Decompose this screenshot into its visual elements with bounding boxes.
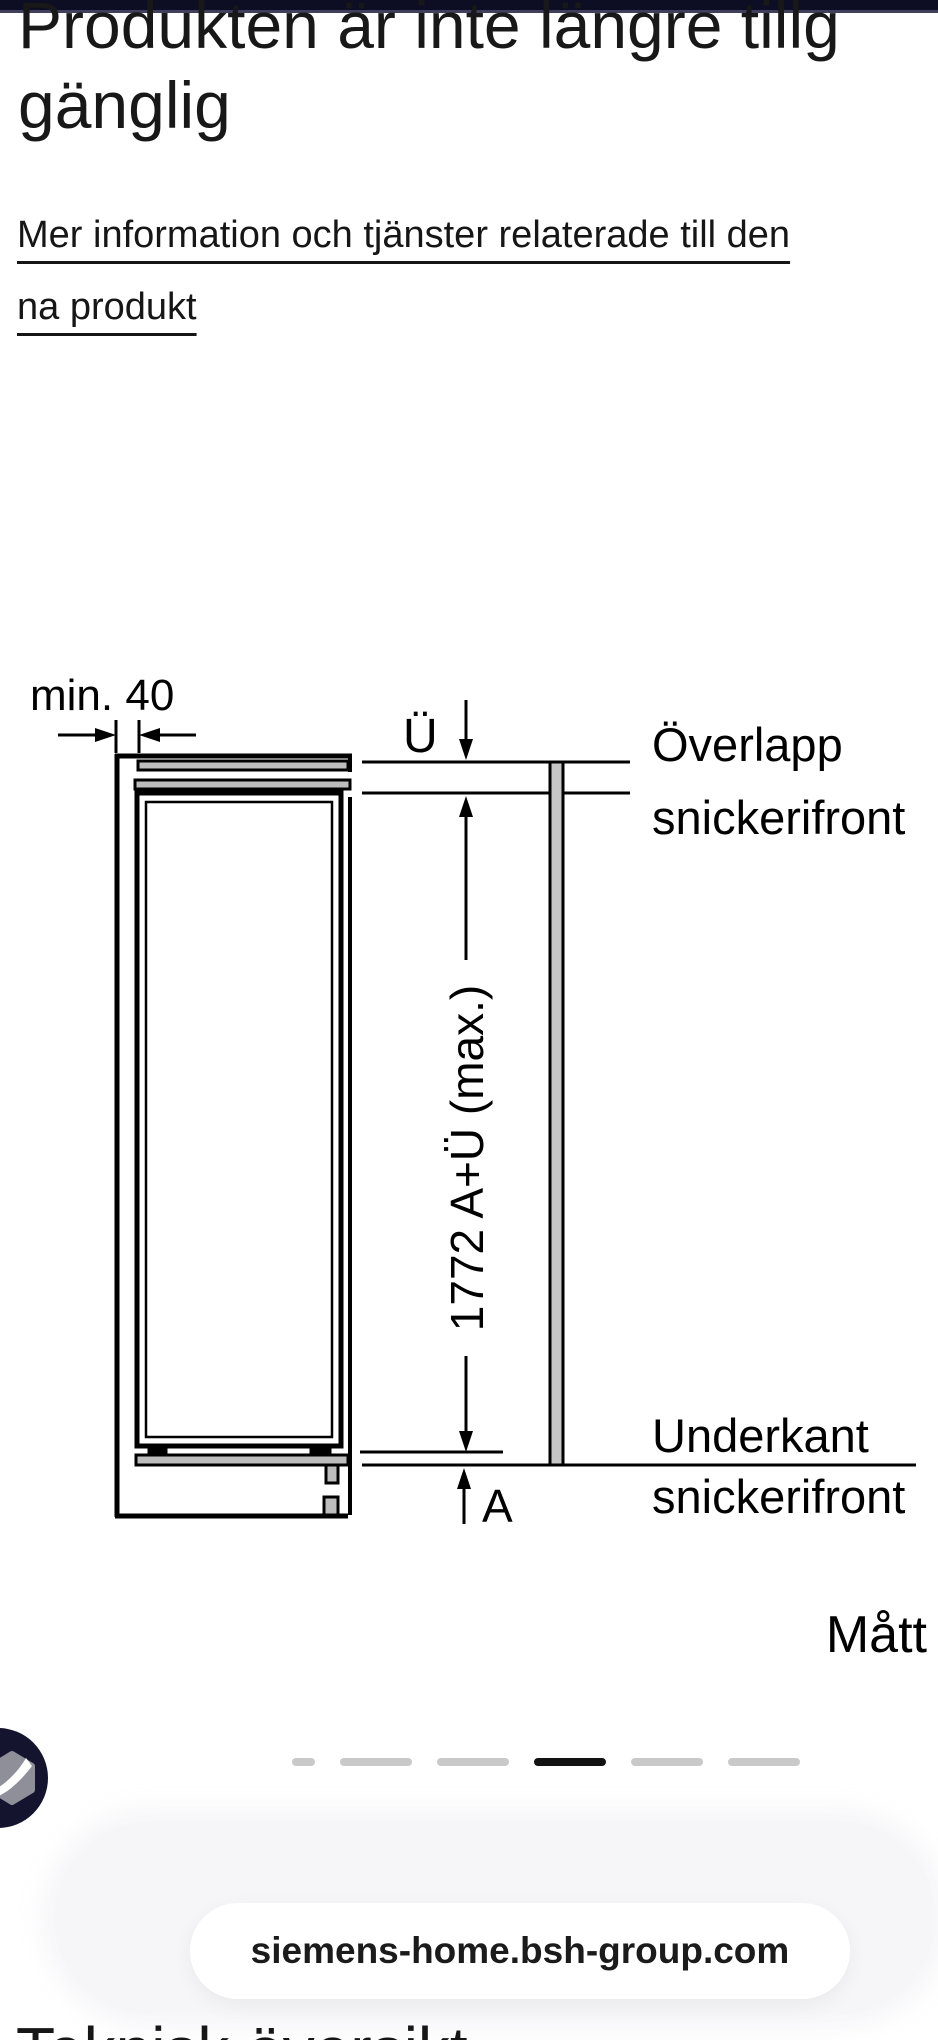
dim-label-height: 1772 A+Ü (max.) xyxy=(441,985,493,1331)
siemens-bsh-badge-icon[interactable] xyxy=(0,1726,50,1830)
diagram-caption: Mått xyxy=(826,1606,928,1664)
url-text: siemens-home.bsh-group.com xyxy=(190,1903,850,1999)
label-overlap-line1: Överlapp xyxy=(652,718,843,771)
carousel-dot[interactable] xyxy=(292,1758,315,1766)
mobile-product-page: Produkten är inte längre tillg gänglig M… xyxy=(0,0,938,2040)
carousel-dot[interactable] xyxy=(728,1758,800,1766)
carousel-dot[interactable] xyxy=(437,1758,509,1766)
carousel xyxy=(0,1758,938,1766)
dim-label-min40: min. 40 xyxy=(30,671,174,720)
next-section-heading: Teknisk översikt xyxy=(16,2012,468,2040)
page-title-line2: gänglig xyxy=(18,72,231,138)
product-info-link-line1[interactable]: Mer information och tjänster relaterade … xyxy=(17,216,790,254)
dim-label-a: A xyxy=(482,1480,513,1532)
carousel-dot[interactable] xyxy=(631,1758,703,1766)
carousel-dot[interactable] xyxy=(340,1758,412,1766)
cabinet-front-panel xyxy=(550,762,563,1465)
url-pill[interactable]: siemens-home.bsh-group.com xyxy=(190,1903,850,1999)
product-info-link-line2[interactable]: na produkt xyxy=(17,288,197,326)
label-bottom-line1: Underkant xyxy=(652,1409,869,1462)
page-title-line1: Produkten är inte längre tillg xyxy=(18,0,840,58)
installation-dimensions-diagram: min. 40 xyxy=(0,640,938,1680)
label-overlap-line2: snickerifront xyxy=(652,791,905,844)
dim-label-u: Ü xyxy=(403,710,438,763)
label-bottom-line2: snickerifront xyxy=(652,1470,905,1523)
carousel-dot[interactable] xyxy=(534,1758,606,1766)
